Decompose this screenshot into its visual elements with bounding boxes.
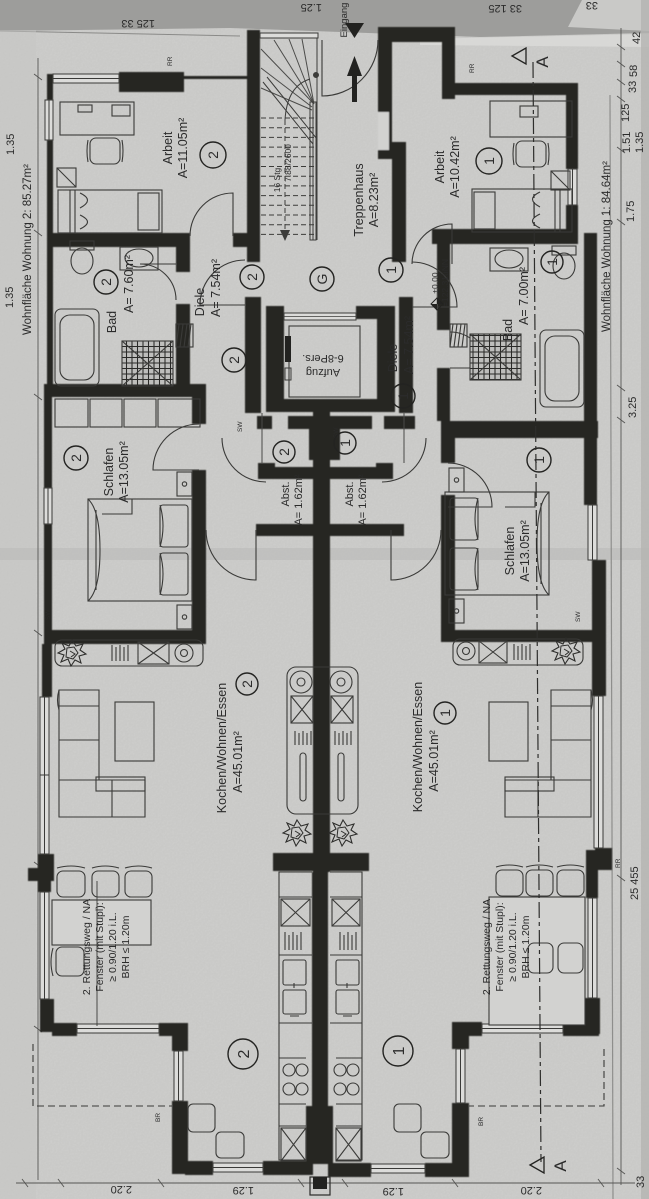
svg-text:2: 2 xyxy=(226,356,242,364)
svg-text:RR: RR xyxy=(469,63,476,73)
svg-text:125 33: 125 33 xyxy=(121,17,155,29)
svg-text:3.25: 3.25 xyxy=(627,397,639,418)
svg-text:±0.00: ±0.00 xyxy=(430,272,440,293)
svg-text:Abst.: Abst. xyxy=(280,481,292,506)
svg-text:A= 7.00m²: A= 7.00m² xyxy=(517,267,531,325)
svg-text:2: 2 xyxy=(244,273,260,281)
svg-text:A: A xyxy=(551,1160,570,1172)
svg-text:1.35: 1.35 xyxy=(4,287,16,308)
svg-text:16 Stg: 16 Stg xyxy=(272,167,282,192)
svg-text:Kochen/Wohnen/Essen: Kochen/Wohnen/Essen xyxy=(215,683,229,813)
svg-text:2. Rettungsweg / NA: 2. Rettungsweg / NA xyxy=(81,899,93,995)
svg-text:1: 1 xyxy=(437,709,453,717)
svg-text:1: 1 xyxy=(481,157,497,165)
svg-text:Bad: Bad xyxy=(105,311,119,333)
svg-text:=122.31üNN: =122.31üNN xyxy=(440,259,450,307)
svg-text:A=11.05m²: A=11.05m² xyxy=(176,118,190,179)
svg-text:58: 58 xyxy=(628,65,640,77)
svg-text:A= 7.60m²: A= 7.60m² xyxy=(122,255,136,313)
svg-text:42: 42 xyxy=(631,32,643,44)
svg-text:SW: SW xyxy=(575,611,582,622)
svg-text:A= 7.54m²: A= 7.54m² xyxy=(402,316,416,374)
svg-text:2: 2 xyxy=(68,454,84,462)
svg-text:1.35: 1.35 xyxy=(634,132,646,153)
svg-text:BR: BR xyxy=(478,1117,485,1126)
svg-text:G: G xyxy=(314,274,330,285)
svg-text:BRH ≤ 1.20m: BRH ≤ 1.20m xyxy=(120,915,132,978)
svg-text:2: 2 xyxy=(98,278,114,286)
svg-text:1: 1 xyxy=(337,439,353,447)
svg-text:SW: SW xyxy=(237,421,244,432)
svg-text:RR: RR xyxy=(167,56,174,66)
svg-text:Treppenhaus: Treppenhaus xyxy=(352,163,366,236)
svg-text:7.88/2600: 7.88/2600 xyxy=(283,144,293,182)
svg-text:1: 1 xyxy=(395,392,411,400)
svg-text:RR: RR xyxy=(615,858,622,868)
svg-text:A: A xyxy=(533,56,552,68)
svg-text:A=10.42m²: A=10.42m² xyxy=(448,136,462,198)
svg-text:6-8Pers.: 6-8Pers. xyxy=(302,352,344,364)
svg-text:Kochen/Wohnen/Essen: Kochen/Wohnen/Essen xyxy=(411,682,425,812)
svg-text:2.20: 2.20 xyxy=(111,1183,132,1195)
svg-text:33: 33 xyxy=(627,81,639,93)
svg-text:1: 1 xyxy=(544,258,560,266)
svg-text:≥ 0.90/1.20 i.L.: ≥ 0.90/1.20 i.L. xyxy=(107,912,119,981)
svg-text:1: 1 xyxy=(391,1046,408,1055)
svg-text:Arbeit: Arbeit xyxy=(433,150,447,183)
svg-text:1.75: 1.75 xyxy=(625,201,637,222)
svg-text:33: 33 xyxy=(635,1176,647,1188)
svg-text:≥ 0.90/1.20 i.L.: ≥ 0.90/1.20 i.L. xyxy=(507,912,519,981)
svg-text:A= 1.62m²: A= 1.62m² xyxy=(293,474,305,525)
svg-text:1: 1 xyxy=(531,456,547,464)
svg-text:33 125: 33 125 xyxy=(488,2,522,14)
svg-text:1.29: 1.29 xyxy=(233,1184,254,1196)
svg-text:Schlafen: Schlafen xyxy=(503,527,517,576)
svg-text:A=13.05m²: A=13.05m² xyxy=(117,441,131,503)
svg-text:Bad: Bad xyxy=(501,319,515,341)
svg-text:A=13.05m²: A=13.05m² xyxy=(518,520,532,582)
svg-text:Fenster (mit Stupl):: Fenster (mit Stupl): xyxy=(494,902,506,991)
svg-text:Aufzug: Aufzug xyxy=(306,366,340,378)
svg-text:Arbeit: Arbeit xyxy=(161,131,175,164)
svg-text:A= 7.54m²: A= 7.54m² xyxy=(209,259,223,317)
svg-text:Wohnfläche Wohnung 1: 84.64m²: Wohnfläche Wohnung 1: 84.64m² xyxy=(601,161,613,332)
svg-text:A=45.01m²: A=45.01m² xyxy=(427,730,441,792)
svg-text:33: 33 xyxy=(586,0,598,11)
svg-text:BR: BR xyxy=(155,1113,162,1122)
svg-text:Fenster (mit Stupl):: Fenster (mit Stupl): xyxy=(94,902,106,991)
svg-text:1.51: 1.51 xyxy=(621,132,633,153)
svg-text:1.35: 1.35 xyxy=(5,134,17,155)
svg-text:125: 125 xyxy=(620,104,632,122)
svg-text:Diele: Diele xyxy=(386,344,400,373)
svg-text:1.25: 1.25 xyxy=(301,1,322,13)
svg-text:2.20: 2.20 xyxy=(521,1184,542,1196)
svg-text:A= 1.62m²: A= 1.62m² xyxy=(357,474,369,525)
svg-text:2: 2 xyxy=(276,448,292,456)
svg-text:2: 2 xyxy=(236,1049,253,1058)
svg-text:Eingang: Eingang xyxy=(339,3,350,38)
svg-text:Wohnfläche Wohnung 2: 85.27m²: Wohnfläche Wohnung 2: 85.27m² xyxy=(22,164,34,335)
svg-text:2: 2 xyxy=(239,680,255,688)
svg-text:2. Rettungsweg / NA: 2. Rettungsweg / NA xyxy=(481,899,493,995)
svg-text:2: 2 xyxy=(205,151,221,159)
svg-text:Diele: Diele xyxy=(193,288,207,317)
svg-text:A=45.01m²: A=45.01m² xyxy=(231,731,245,793)
svg-text:25 455: 25 455 xyxy=(629,866,641,900)
svg-text:Abst.: Abst. xyxy=(344,481,356,506)
svg-text:A=8.23m²: A=8.23m² xyxy=(367,173,381,228)
svg-text:BRH ≤ 1.20m: BRH ≤ 1.20m xyxy=(520,915,532,978)
svg-text:1: 1 xyxy=(383,266,399,274)
svg-text:SW: SW xyxy=(45,609,52,620)
svg-text:Schlafen: Schlafen xyxy=(102,448,116,497)
svg-text:1.29: 1.29 xyxy=(383,1185,404,1197)
